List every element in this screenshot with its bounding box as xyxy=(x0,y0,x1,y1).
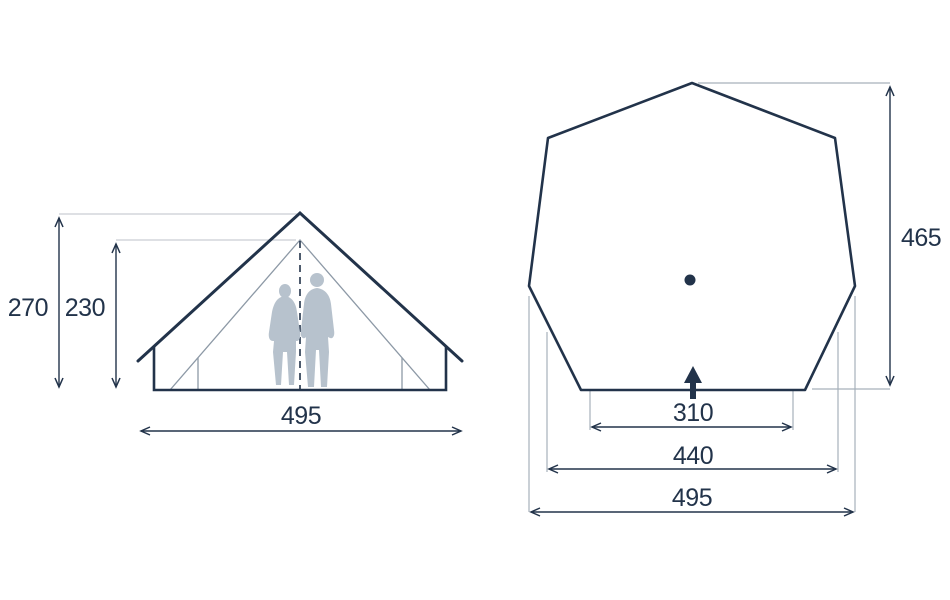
tent-footprint-outline xyxy=(529,83,855,390)
mid-width-label: 440 xyxy=(673,442,713,470)
floor-plan-view: 465 310 440 495 xyxy=(529,83,941,512)
tent-dimension-diagram: 270 230 xyxy=(0,0,950,600)
front-elevation-view: 270 230 xyxy=(8,213,462,431)
door-width-label: 310 xyxy=(673,399,713,427)
depth-label: 465 xyxy=(901,224,941,252)
diagram-svg: 270 230 xyxy=(0,0,950,600)
outer-height-label: 270 xyxy=(8,294,48,322)
woman-silhouette-icon xyxy=(269,284,301,385)
front-width-label: 495 xyxy=(281,402,321,430)
center-pole-dot xyxy=(685,275,696,286)
couple-silhouette xyxy=(269,273,335,387)
entrance-arrow-icon xyxy=(684,366,702,399)
max-width-label: 495 xyxy=(672,484,712,512)
inner-height-label: 230 xyxy=(65,294,105,322)
man-silhouette-icon xyxy=(301,273,335,387)
